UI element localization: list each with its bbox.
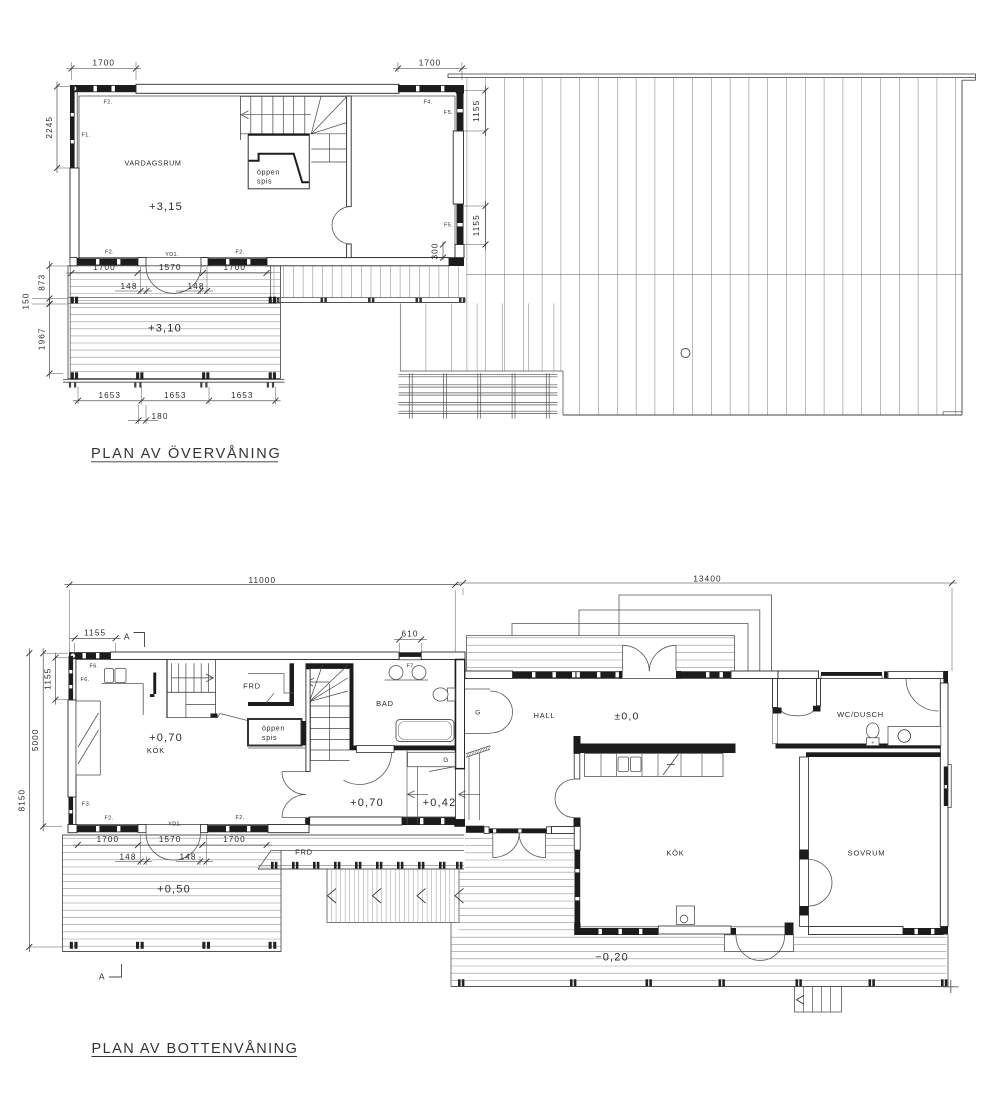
svg-text:148: 148 bbox=[180, 853, 197, 862]
svg-text:1570: 1570 bbox=[159, 263, 182, 272]
svg-text:−0,20: −0,20 bbox=[595, 952, 629, 964]
svg-text:YD1.: YD1. bbox=[165, 252, 179, 258]
svg-text:2245: 2245 bbox=[45, 116, 54, 139]
svg-text:1967: 1967 bbox=[38, 327, 47, 350]
svg-text:WC/DUSCH: WC/DUSCH bbox=[837, 710, 884, 719]
svg-text:13400: 13400 bbox=[693, 575, 721, 584]
svg-text:+0,70: +0,70 bbox=[350, 797, 384, 809]
svg-text:+0,50: +0,50 bbox=[157, 884, 191, 896]
svg-text:148: 148 bbox=[121, 282, 138, 291]
svg-text:148: 148 bbox=[188, 282, 205, 291]
svg-text:1155: 1155 bbox=[472, 100, 481, 122]
svg-text:F4.: F4. bbox=[424, 100, 433, 106]
svg-text:1570: 1570 bbox=[159, 835, 182, 844]
svg-text:±0,0: ±0,0 bbox=[614, 711, 639, 723]
svg-text:11000: 11000 bbox=[248, 576, 276, 585]
svg-text:1700: 1700 bbox=[419, 59, 442, 68]
svg-text:VARDAGSRUM: VARDAGSRUM bbox=[125, 159, 182, 168]
svg-text:A: A bbox=[124, 632, 130, 642]
svg-text:öppen: öppen bbox=[262, 726, 285, 733]
svg-text:A: A bbox=[99, 972, 105, 982]
svg-text:148: 148 bbox=[120, 853, 137, 862]
svg-text:KÖK: KÖK bbox=[666, 849, 684, 858]
svg-text:öppen: öppen bbox=[257, 170, 280, 177]
svg-text:300: 300 bbox=[431, 243, 440, 260]
svg-text:F2.: F2. bbox=[236, 815, 245, 821]
svg-text:180: 180 bbox=[152, 412, 169, 421]
svg-text:F2.: F2. bbox=[105, 250, 114, 256]
svg-text:BAD: BAD bbox=[376, 699, 394, 708]
svg-text:1700: 1700 bbox=[223, 263, 246, 272]
svg-text:G: G bbox=[475, 710, 481, 717]
svg-text:F5.: F5. bbox=[444, 110, 453, 116]
svg-text:PLAN AV ÖVERVÅNING: PLAN AV ÖVERVÅNING bbox=[91, 444, 281, 462]
svg-text:1155: 1155 bbox=[44, 668, 53, 690]
svg-text:150: 150 bbox=[22, 293, 31, 310]
svg-text:1155: 1155 bbox=[472, 214, 481, 236]
svg-text:8150: 8150 bbox=[17, 789, 26, 812]
svg-text:5000: 5000 bbox=[31, 728, 40, 751]
svg-text:F3.: F3. bbox=[82, 802, 91, 808]
svg-text:F5.: F5. bbox=[444, 223, 453, 229]
svg-text:SOVRUM: SOVRUM bbox=[848, 849, 886, 858]
svg-text:610: 610 bbox=[402, 630, 419, 639]
svg-text:F6.: F6. bbox=[90, 664, 99, 670]
svg-text:YD1.: YD1. bbox=[168, 822, 182, 828]
svg-text:+: + bbox=[871, 740, 874, 746]
svg-text:1155: 1155 bbox=[84, 628, 106, 637]
svg-text:F1.: F1. bbox=[82, 133, 91, 139]
svg-text:1653: 1653 bbox=[164, 391, 187, 400]
svg-text:FRD: FRD bbox=[295, 848, 313, 857]
svg-text:HALL: HALL bbox=[534, 711, 556, 720]
svg-text:+0,70: +0,70 bbox=[149, 732, 183, 744]
svg-text:+0,42: +0,42 bbox=[423, 797, 457, 809]
svg-text:FRD: FRD bbox=[243, 682, 261, 691]
svg-text:1700: 1700 bbox=[223, 835, 246, 844]
svg-text:1653: 1653 bbox=[98, 391, 121, 400]
svg-text:F6.: F6. bbox=[81, 677, 90, 683]
svg-text:1700: 1700 bbox=[97, 835, 120, 844]
svg-text:+3,10: +3,10 bbox=[148, 323, 182, 335]
svg-text:873: 873 bbox=[38, 274, 47, 291]
svg-text:F7.: F7. bbox=[407, 664, 416, 670]
svg-text:+3,15: +3,15 bbox=[149, 201, 183, 213]
svg-text:1700: 1700 bbox=[92, 59, 115, 68]
svg-text:1653: 1653 bbox=[231, 391, 254, 400]
svg-text:F2.: F2. bbox=[236, 250, 245, 256]
svg-text:F2.: F2. bbox=[104, 100, 113, 106]
svg-text:1700: 1700 bbox=[93, 263, 116, 272]
svg-text:PLAN AV BOTTENVÅNING: PLAN AV BOTTENVÅNING bbox=[92, 1040, 299, 1057]
svg-text:F2.: F2. bbox=[105, 816, 114, 822]
svg-text:G: G bbox=[443, 757, 449, 764]
svg-text:spis: spis bbox=[262, 735, 277, 742]
svg-text:KÖK: KÖK bbox=[147, 746, 165, 755]
svg-text:spis: spis bbox=[257, 179, 272, 186]
